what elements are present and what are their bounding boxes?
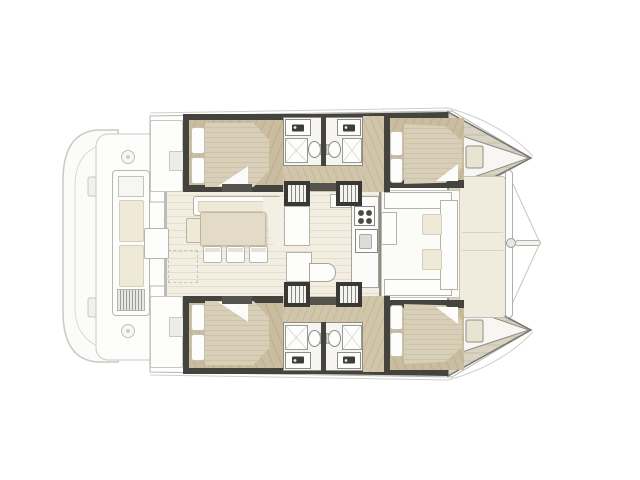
hull-bottom <box>148 280 540 380</box>
deck-hatch <box>121 150 135 164</box>
sideboard <box>222 184 252 192</box>
sink-vanity <box>337 352 361 369</box>
head-divider-wall <box>321 117 326 166</box>
companionway-stairs <box>284 282 310 307</box>
faucet-icon <box>343 124 355 131</box>
shower <box>342 138 362 163</box>
sideboard <box>310 297 336 305</box>
sideboard <box>310 183 336 191</box>
sideboard <box>222 296 252 304</box>
toilet <box>328 141 341 158</box>
toilet-tank <box>326 333 329 344</box>
dining-bench-seat <box>186 218 201 243</box>
sink-basin <box>359 234 372 249</box>
dining-chair <box>203 246 222 263</box>
forward-cockpit-table <box>381 212 397 245</box>
bowsprit <box>515 240 541 246</box>
pillow <box>191 157 205 184</box>
helm-console <box>169 317 184 337</box>
forward-cushion <box>422 214 442 235</box>
pillow <box>390 131 403 156</box>
catamaran-floor-plan <box>0 0 640 480</box>
companionway-stairs <box>336 282 362 307</box>
hull-corridor <box>363 116 384 192</box>
head-divider-wall <box>321 322 326 371</box>
cabin-wall <box>183 296 189 374</box>
cockpit-locker <box>118 176 144 197</box>
cockpit-bench-cushion <box>119 200 144 242</box>
aft-deck-step <box>150 296 183 368</box>
aft-deck-step <box>150 120 183 192</box>
hull-corridor <box>363 296 384 372</box>
cockpit-bench-cushion <box>119 245 144 287</box>
panel-seam <box>462 250 503 251</box>
dining-table <box>200 212 266 246</box>
sink-vanity <box>285 119 311 136</box>
pillow <box>191 304 205 331</box>
companionway-stairs <box>284 181 310 206</box>
galley-sink <box>355 229 378 253</box>
forward-bench-right <box>440 200 458 290</box>
dining-chair <box>249 246 268 263</box>
pillow <box>390 332 403 357</box>
pillow <box>191 127 205 154</box>
sink-vanity <box>285 352 311 369</box>
dining-chair <box>226 246 245 263</box>
pillow <box>191 334 205 361</box>
pillow <box>390 158 403 183</box>
sliding-door-swing <box>168 250 198 283</box>
panel-seam <box>462 232 503 233</box>
companionway-stairs <box>336 181 362 206</box>
cockpit-table <box>144 228 169 259</box>
helm-console <box>169 151 184 171</box>
cabin-wall <box>183 114 189 192</box>
deck-hatch <box>121 324 135 338</box>
toilet <box>328 330 341 347</box>
forward-cushion <box>422 249 442 270</box>
hull-top <box>148 108 540 208</box>
cockpit-grill-hatch <box>117 289 145 311</box>
faucet-icon <box>343 357 355 364</box>
shower <box>342 325 362 350</box>
toilet-tank <box>326 144 329 155</box>
shower <box>285 325 308 350</box>
faucet-icon <box>292 124 304 131</box>
pillow <box>390 305 403 330</box>
faucet-icon <box>292 357 304 364</box>
sink-vanity <box>337 119 361 136</box>
saloon-cabinet-top <box>284 206 310 246</box>
shower <box>285 138 308 163</box>
stove-burners <box>354 206 375 226</box>
